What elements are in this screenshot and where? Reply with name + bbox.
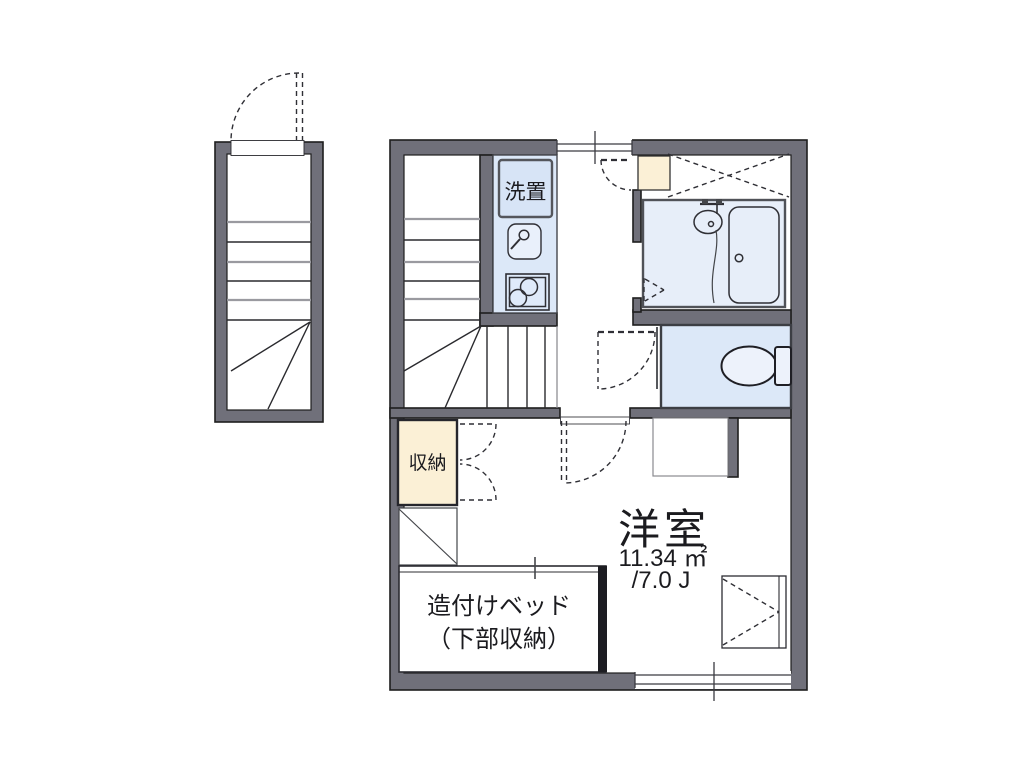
toilet-bowl-icon [722,347,777,386]
wall-entry-bath-lower [633,298,641,312]
outdoor-staircase [215,73,323,422]
wall-kitchen-bottom [480,313,557,326]
washer-space-label: 洗置 [505,181,547,204]
kitchen-sink [508,224,541,259]
wall-hall-left [390,408,560,418]
entrance-mat [638,156,670,190]
wall-bath-toilet [633,310,791,325]
faucet-handle-icon [716,199,722,204]
wall-stairs-kitchen [480,155,493,326]
counter-shelf [653,418,728,476]
room-area-jo: /7.0 J [632,567,691,594]
closet-label: 収納 [408,452,446,474]
hatch-square [722,576,786,648]
floorplan-canvas: 洗置 [0,0,1016,772]
tower-door-opening [231,141,304,156]
wall-hall-right [630,408,791,418]
built-in-bed: 造付けベッド （下部収納） [399,557,607,672]
tower-door-swing [231,73,299,141]
wall-stub-counter [728,418,738,477]
bed-side-board [598,566,607,672]
room-door-threshold [561,417,630,424]
wall-entry-bath-upper [633,190,641,242]
hatch-outline [722,576,786,648]
floorplan-drawing: 洗置 [0,0,1016,772]
toilet-tank-icon [775,347,791,385]
window-bottom-opening [635,671,791,689]
kitchen: 洗置 [493,155,557,313]
bed-label-line1: 造付けベッド [427,593,571,620]
tower-stairwell [227,154,311,410]
bed-label-line2: （下部収納） [427,626,571,653]
bathroom [643,199,785,307]
faucet-handle-icon [702,199,708,204]
